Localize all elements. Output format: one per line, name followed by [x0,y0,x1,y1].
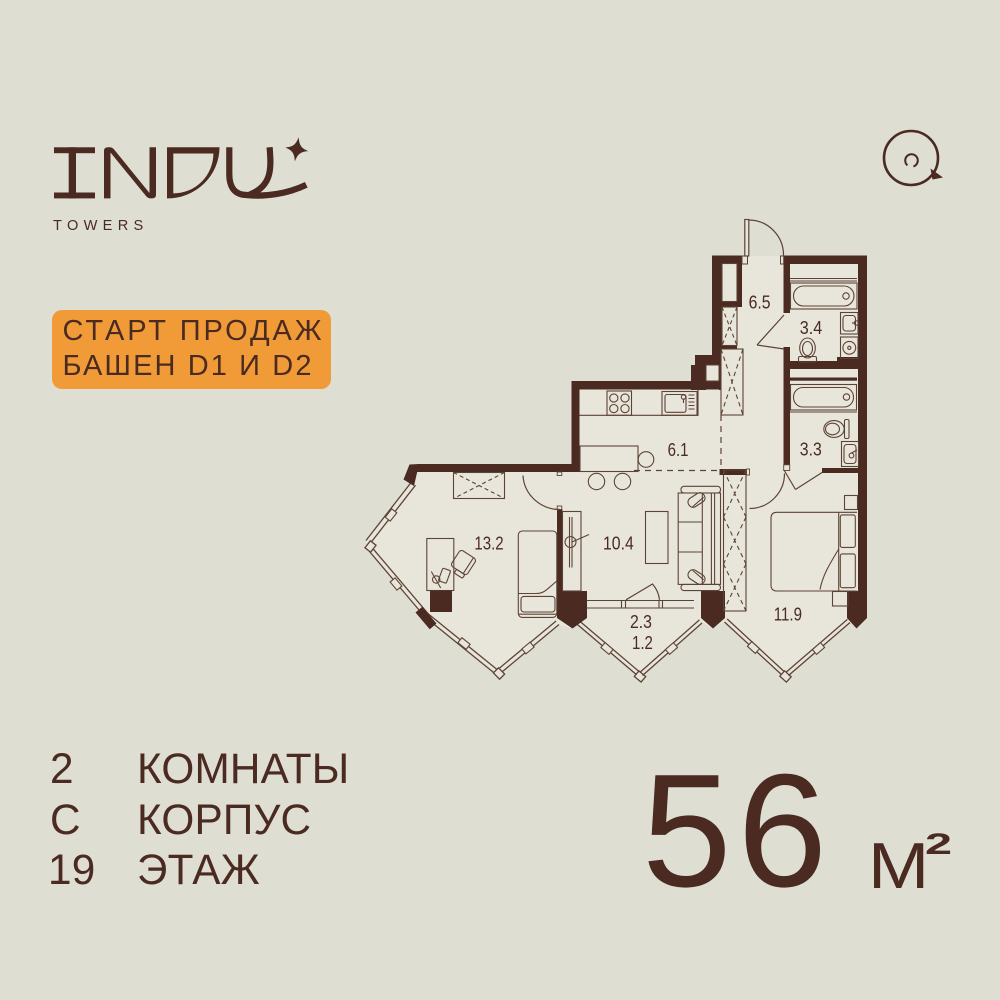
svg-text:2.3: 2.3 [630,611,652,633]
svg-text:1.2: 1.2 [632,632,653,653]
svg-text:3.4: 3.4 [800,317,823,338]
svg-text:13.2: 13.2 [474,533,503,554]
svg-text:6.1: 6.1 [668,439,689,460]
svg-text:3.3: 3.3 [800,438,822,460]
svg-text:10.4: 10.4 [603,532,634,554]
svg-text:11.9: 11.9 [774,604,802,625]
svg-text:6.5: 6.5 [749,291,771,313]
